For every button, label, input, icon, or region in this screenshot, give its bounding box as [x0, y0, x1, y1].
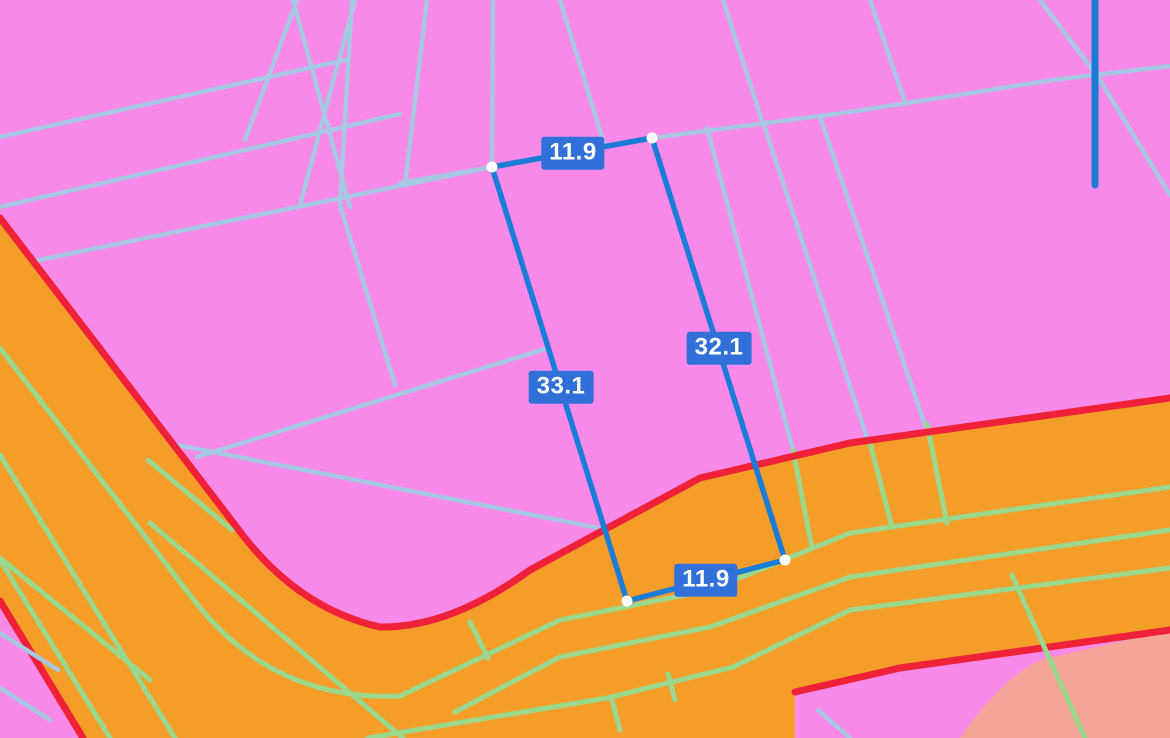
measurement-vertex-handle[interactable]: [647, 133, 658, 144]
map-canvas[interactable]: 11.9 32.1 33.1 11.9: [0, 0, 1170, 738]
measurement-label-right: 32.1: [687, 332, 752, 365]
measurement-vertex-handle[interactable]: [487, 162, 498, 173]
measurement-vertex-handle[interactable]: [622, 596, 633, 607]
measurement-label-top: 11.9: [541, 137, 604, 170]
measurement-label-bottom: 11.9: [674, 564, 737, 597]
map-layers: [0, 0, 1170, 738]
measurement-label-left: 33.1: [529, 371, 594, 404]
measurement-vertex-handle[interactable]: [780, 555, 791, 566]
